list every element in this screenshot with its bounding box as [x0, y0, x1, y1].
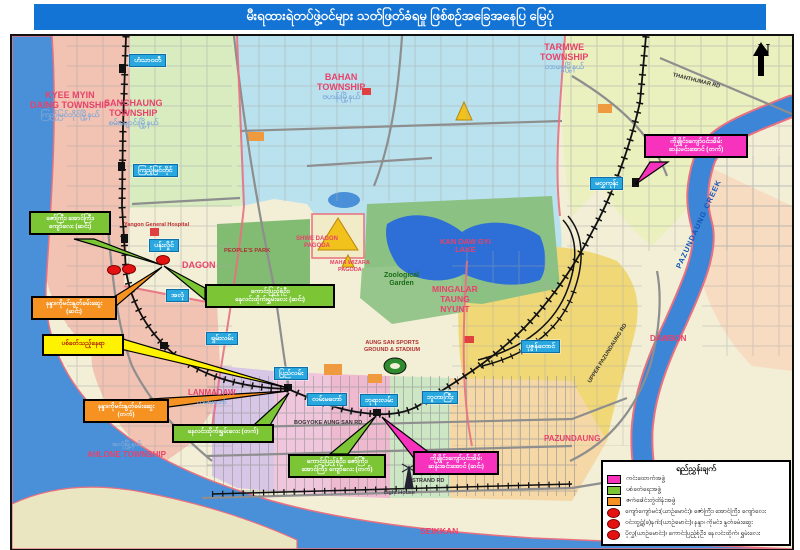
- label-kandawgyi-lake: KAN DAW GYILAKE: [440, 238, 491, 254]
- callout-kaungpyisoneoo-group-down: ကောင်းပြည့်စုံဦး၊နေလင်းထိုက်၊ရွှမ်းလေး (…: [205, 284, 335, 308]
- station-ahlone: အလုံ: [166, 289, 189, 302]
- legend: ရည်ညွှန်းချက် ကင်းထောက်အဖွဲ့ ပစ်ခတ်ရေးအဖ…: [601, 460, 791, 546]
- street-grid-bahan: [237, 36, 567, 201]
- legend-item-shooting: ပစ်ခတ်ရေးအဖွဲ့: [607, 485, 785, 496]
- label-bahan-township: BAHAN TOWNSHIP ဗဟန်းမြို့နယ်: [317, 72, 365, 102]
- station-lanmadaw: လမ်းမတော်: [307, 393, 347, 406]
- legend-item-car2: ဝင်းထွဋ်(ခ)နဂါး(ယာဉ်မောင်း)၊ နန္ဒာ၊ ကိုမ…: [607, 518, 785, 529]
- callout-naelinhtike-group-up: နေလင်းထိုက်၊ရွှမ်းလေး (တက်): [172, 424, 274, 443]
- map-title-bar: မီးရထားရဲတပ်ဖွဲ့ဝင်များ သတ်ဖြတ်ခံရမှု ဖြ…: [34, 4, 766, 30]
- north-arrow: N: [747, 42, 781, 98]
- label-pazundaung-township: PAZUNDAUNG: [544, 434, 600, 444]
- station-kyeemyindaing: ကြည့်မြင်တိုင်: [133, 164, 178, 177]
- label-zoological-garden: ZoologicalGarden: [384, 272, 419, 288]
- car1-dot-icon: [607, 508, 620, 518]
- callout-zawgyi-group-down: ဇော်ကြီး၊ အောင်ကြီး၊ကျော်လေး (ဆင်း): [29, 211, 111, 235]
- label-dawbon-township: DAWBON: [650, 334, 686, 344]
- station-hanthawaddy: ဟံသာဝတီ: [129, 54, 166, 67]
- label-yangon-general-hospital: Yangon General Hospital: [124, 222, 189, 228]
- station-central: ဘူတာကြီး: [422, 391, 458, 404]
- legend-item-car3: ပိုလွှ(ယာဉ်မောင်း)၊ ကောင်းပြည့်စုံဦး၊ နေ…: [607, 529, 785, 540]
- scout-team-swatch: [607, 475, 621, 484]
- label-peoples-park: PEOPLE'S PARK: [224, 248, 270, 254]
- label-bogyoke-road: BOGYOKE AUNG SAN RD: [294, 420, 362, 426]
- callout-kochaing-group-down: ကိုချိုင်း၊ကျော်ဝင်းအိမ်းဆန်းအင်းအောင် (…: [413, 451, 499, 475]
- callout-shooting-site: ပစ်ခတ်သည့်နေရာ: [42, 334, 124, 356]
- legend-item-scout: ကင်းထောက်အဖွဲ့: [607, 474, 785, 485]
- label-shwedagon-pagoda: SHWE DAGONPAGODA: [296, 236, 338, 250]
- map-frame: KYEE MYIN DAING TOWNSHIP ကြည့်မြင်တိုင်မ…: [10, 34, 794, 550]
- legend-title: ရည်ညွှန်းချက်: [607, 464, 785, 474]
- label-aung-san-stadium: AUNG SAN SPORTSGROUND & STADIUM: [364, 340, 420, 353]
- label-seikkan-township: SEIKKAN: [420, 526, 458, 536]
- label-sanchaung-township: SANCHAUNG TOWNSHIP စမ်းချောင်းမြို့နယ်: [104, 98, 163, 128]
- label-light-house: Light House: [384, 490, 415, 496]
- yangon-map[interactable]: KYEE MYIN DAING TOWNSHIP ကြည့်မြင်တိုင်မ…: [12, 36, 792, 549]
- station-pazundaung: ပုဇွန်တောင်: [521, 340, 560, 353]
- station-panhlaing: ပန်းလှိုင်: [149, 239, 179, 252]
- station-mahlwagon: မလွှကုန်း: [590, 177, 623, 190]
- label-strand-road: STRAND RD: [412, 478, 444, 484]
- shooting-team-swatch: [607, 486, 621, 495]
- station-phayalan: ဘုရားလမ်း: [360, 394, 398, 407]
- stadium-icon: [384, 358, 406, 374]
- station-shanlan: ရှမ်းလမ်း: [206, 332, 238, 345]
- legend-item-car1: ကျော်ကျော်မင်း(ယာဉ်မောင်း)၊ ဇော်ကြီး၊ အေ…: [607, 507, 785, 518]
- north-arrow-icon: [747, 42, 775, 78]
- label-mahawizara-pagoda: MAHA WIZARAPAGODA: [330, 260, 370, 273]
- label-lanmadaw-township: LANMADAW လမ်းမတော်: [188, 388, 236, 408]
- engine-team-swatch: [607, 497, 621, 506]
- car3-dot-icon: [607, 530, 620, 540]
- callout-nanda-group-down: နန္ဒာ၊ကိုမင်း၊နွတ်ခမ်းဆွေး(ဆင်း): [31, 296, 117, 320]
- label-ahlone-township: အလုံမြို့နယ် AHLONE TOWNSHIP: [87, 440, 166, 460]
- station-pyaylan: ပြည်လမ်း: [274, 367, 308, 380]
- label-dagon-township: DAGON: [182, 260, 216, 270]
- screenshot: မီးရထားရဲတပ်ဖွဲ့ဝင်များ သတ်ဖြတ်ခံရမှု ဖြ…: [0, 0, 800, 550]
- car2-dot-icon: [607, 519, 620, 529]
- label-tarmwe-township: TARMWE TOWNSHIP တာမွေမြို့နယ်: [540, 42, 588, 72]
- callout-nanda-group-up: နန္ဒာ၊ကိုမင်း၊နွတ်ခမ်းဆွေး(တက်): [83, 399, 169, 423]
- label-kyeemyindaing-township: KYEE MYIN DAING TOWNSHIP ကြည့်မြင်တိုင်မ…: [30, 90, 110, 120]
- label-mingalartaungnyunt-township: MINGALAR TAUNG NYUNT: [432, 284, 478, 314]
- callout-kochaing-group-up: ကိုချိုင်း၊ကျော်ဝင်းအိမ်းဆန်းမင်းအောင် (…: [644, 134, 748, 158]
- callout-kaungpyisoneoo-group-up: ကောင်းပြည့်စုံဦး၊ ဇော်ကြီး၊အောင်ကြီး၊ ကျ…: [288, 454, 386, 478]
- map-title: မီးရထားရဲတပ်ဖွဲ့ဝင်များ သတ်ဖြတ်ခံရမှု ဖြ…: [246, 8, 553, 27]
- legend-item-engine: ဇက်ခေါင်းတွဲထိန်းအဖွဲ့: [607, 496, 785, 507]
